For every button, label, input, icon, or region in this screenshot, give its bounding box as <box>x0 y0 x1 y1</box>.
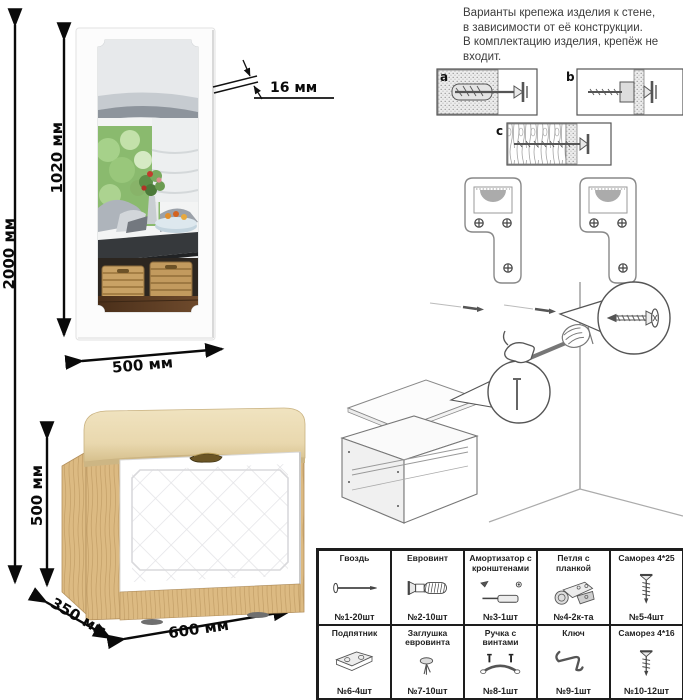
hinge-icon <box>540 574 607 612</box>
dim-mirror-height: 1020 мм <box>48 122 66 194</box>
part-cell-screw-4x25: Саморез 4*25 №5-4шт <box>610 550 683 625</box>
part-cell-nail: Гвоздь №1-20шт <box>318 550 391 625</box>
part-qty: №5-4шт <box>629 612 664 622</box>
part-cell-confirmat: Евровинт №2-10шт <box>391 550 464 625</box>
part-name: Саморез 4*25 <box>618 554 674 564</box>
mount-option-a-label: a <box>440 70 448 84</box>
note-line: В комплектацию изделия, крепёж не <box>463 35 658 50</box>
part-cell-hinge: Петля с планкой №4-2к-та <box>537 550 610 625</box>
part-qty: №6-4шт <box>337 686 372 696</box>
part-qty: №8-1шт <box>483 686 518 696</box>
part-name: Гвоздь <box>340 554 370 564</box>
part-qty: №3-1шт <box>483 612 518 622</box>
short-screw-icon <box>613 638 680 686</box>
part-name: Петля с планкой <box>540 554 607 574</box>
dim-mirror-thickness: 16 мм <box>270 80 317 96</box>
footpad-icon <box>321 638 388 686</box>
part-cell-key: Ключ №9-1шт <box>537 625 610 700</box>
part-cell-gas-strut: Амортизатор с кронштенами №3-1шт <box>464 550 537 625</box>
part-qty: №4-2к-та <box>554 612 594 622</box>
mount-option-b-drawing <box>577 69 683 115</box>
part-name: Саморез 4*16 <box>618 629 674 639</box>
note-line: Варианты крепежа изделия к стене, <box>463 6 658 21</box>
euro-cap-icon <box>394 648 461 686</box>
part-qty: №10-12шт <box>624 686 669 696</box>
assembly-instruction-sheet: Варианты крепежа изделия к стене, в зави… <box>0 0 683 700</box>
part-cell-footpad: Подпятник №6-4шт <box>318 625 391 700</box>
keyhole-bracket-left <box>465 178 521 283</box>
part-qty: №2-10шт <box>408 612 448 622</box>
part-name: Евровинт <box>407 554 448 564</box>
mirror-drawing <box>76 28 215 340</box>
long-screw-icon <box>613 564 680 612</box>
part-name: Заглушка евровинта <box>394 629 461 649</box>
gas-strut-icon <box>467 574 534 612</box>
part-name: Амортизатор с кронштенами <box>467 554 534 574</box>
dim-total-height: 2000 мм <box>0 218 18 290</box>
confirmat-icon <box>394 564 461 612</box>
part-cell-euro-cap: Заглушка евровинта №7-10шт <box>391 625 464 700</box>
part-cell-handle: Ручка с винтами №8-1шт <box>464 625 537 700</box>
part-qty: №7-10шт <box>408 686 448 696</box>
assembly-scene <box>342 282 683 523</box>
part-qty: №1-20шт <box>335 612 375 622</box>
bench-drawing <box>62 408 305 625</box>
mount-option-c-drawing <box>507 123 611 165</box>
keyhole-bracket-right <box>580 178 636 283</box>
part-name: Ручка с винтами <box>467 629 534 649</box>
handle-icon <box>467 648 534 686</box>
part-qty: №9-1шт <box>556 686 591 696</box>
mounting-note: Варианты крепежа изделия к стене, в зави… <box>463 6 658 65</box>
part-name: Ключ <box>562 629 584 639</box>
part-cell-screw-4x16: Саморез 4*16 №10-12шт <box>610 625 683 700</box>
note-line: в зависимости от её конструкции. <box>463 21 658 36</box>
mount-option-c-label: c <box>496 124 503 138</box>
note-line: входит. <box>463 50 658 65</box>
hardware-parts-table: Гвоздь №1-20шт Евровинт №2-10шт Амортиза… <box>316 548 683 700</box>
mount-option-a-drawing <box>437 69 537 115</box>
dim-bench-height: 500 мм <box>28 465 46 526</box>
key-icon <box>540 638 607 686</box>
nail-icon <box>321 564 388 612</box>
mount-option-b-label: b <box>566 70 575 84</box>
part-name: Подпятник <box>332 629 377 639</box>
